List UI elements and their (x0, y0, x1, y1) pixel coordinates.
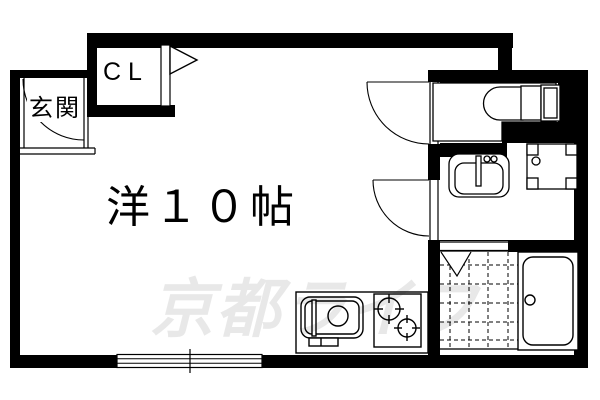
washing-machine-pan-icon (527, 144, 577, 189)
folding-door-icon (441, 252, 471, 276)
kitchen-counter (296, 292, 428, 353)
sliding-window-icon (117, 349, 262, 373)
stove-two-burner-icon (374, 294, 421, 347)
wall-top-step (498, 33, 512, 73)
closet-label: CL (103, 60, 149, 85)
wall-entrance-top (10, 70, 88, 78)
toilet-door-arc (367, 82, 429, 144)
closet-door-triangle-icon (170, 46, 197, 74)
main-room-label: 洋１０帖 (106, 186, 298, 230)
floorplan-canvas: 洋１０帖 玄関 CL 京都ライフ (0, 0, 600, 400)
bathtub-icon (518, 252, 578, 350)
wall-inner-vert-c (428, 240, 440, 355)
wall-inner-vert-a (428, 70, 440, 82)
bathroom (437, 251, 578, 350)
wall-left (10, 70, 20, 368)
closet-door-strip (161, 45, 170, 106)
wall-bottom (10, 355, 588, 368)
washbasin-icon (449, 154, 509, 197)
kitchen-sink-icon (301, 297, 363, 346)
entrance-label: 玄関 (27, 96, 83, 122)
washroom-door-arc (373, 180, 429, 236)
wall-top-main (88, 33, 513, 48)
floorplan-drawing (0, 0, 600, 400)
wall-closet-bottom (87, 105, 175, 117)
wall-toilet-side-block (502, 122, 574, 143)
toilet-icon (484, 85, 560, 121)
